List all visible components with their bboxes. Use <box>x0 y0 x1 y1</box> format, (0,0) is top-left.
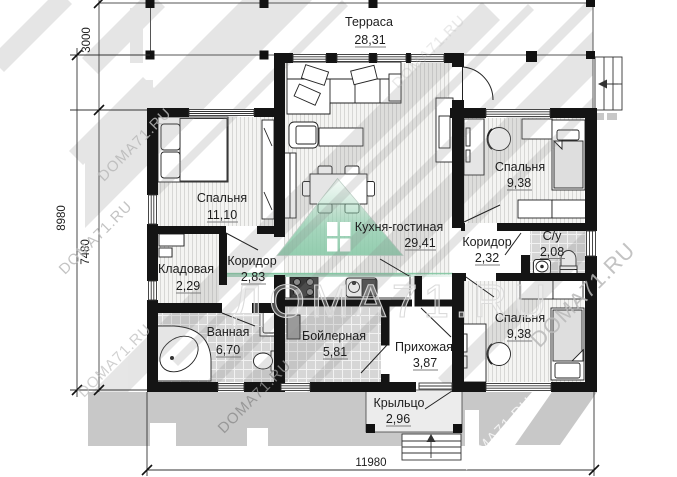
svg-text:Спальня: Спальня <box>197 191 247 205</box>
svg-text:Кладовая: Кладовая <box>158 262 214 276</box>
svg-text:3000: 3000 <box>81 27 93 53</box>
svg-text:Ванная: Ванная <box>207 325 250 339</box>
svg-text:ДОМА71.RU: ДОМА71.RU <box>232 275 552 327</box>
svg-text:28,31: 28,31 <box>354 33 385 47</box>
svg-text:2,29: 2,29 <box>176 279 200 293</box>
svg-text:9,38: 9,38 <box>507 176 531 190</box>
svg-text:С/у: С/у <box>543 229 563 243</box>
svg-text:29,41: 29,41 <box>404 236 435 250</box>
svg-text:3,87: 3,87 <box>413 356 437 370</box>
svg-text:2,32: 2,32 <box>475 251 499 265</box>
svg-text:Спальня: Спальня <box>495 160 545 174</box>
svg-text:2,96: 2,96 <box>386 412 410 426</box>
svg-text:2,08: 2,08 <box>540 245 564 259</box>
svg-text:11,10: 11,10 <box>207 208 237 222</box>
svg-text:Коридор: Коридор <box>462 235 511 249</box>
svg-text:8980: 8980 <box>56 205 68 231</box>
svg-text:Коридор: Коридор <box>227 254 276 268</box>
svg-text:6,70: 6,70 <box>216 343 240 357</box>
svg-text:Крыльцо: Крыльцо <box>374 396 425 410</box>
svg-text:Прихожая: Прихожая <box>395 340 453 354</box>
svg-text:Терраса: Терраса <box>345 15 393 29</box>
svg-text:11980: 11980 <box>355 457 386 469</box>
svg-text:5,81: 5,81 <box>323 345 347 359</box>
svg-text:Бойлерная: Бойлерная <box>302 329 366 343</box>
svg-text:Кухня-гостиная: Кухня-гостиная <box>355 220 443 234</box>
